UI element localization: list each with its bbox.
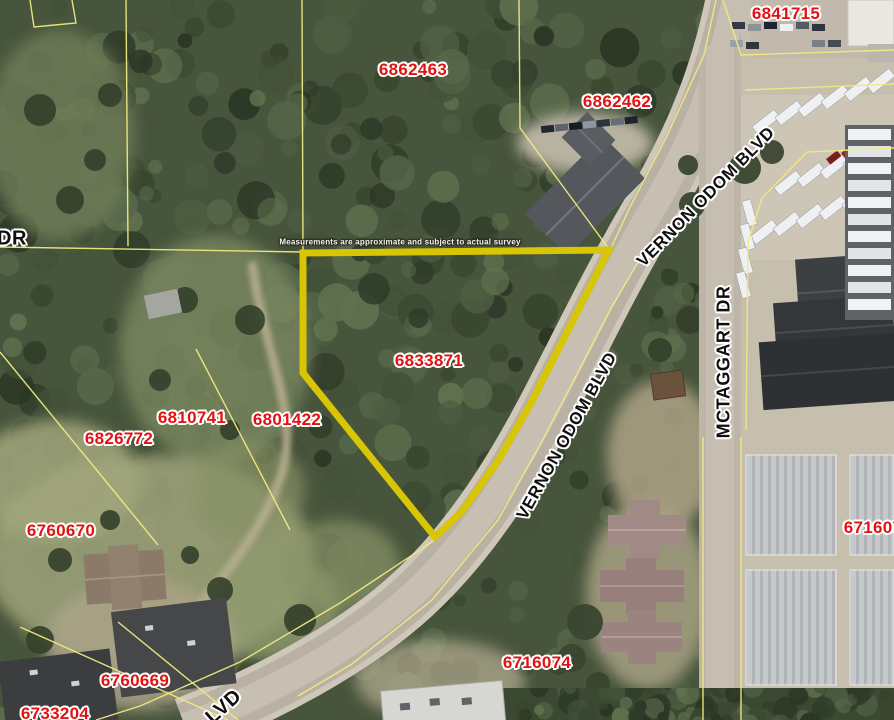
parcel-label[interactable]: 6841715 (752, 4, 820, 24)
parcel-label[interactable]: 6760670 (27, 521, 95, 541)
shed (650, 370, 685, 400)
warehouse-roofs (746, 455, 894, 685)
parcel-label[interactable]: 6733204 (21, 704, 89, 720)
trailer-column (848, 129, 891, 310)
parcel-label[interactable]: 6826772 (85, 429, 153, 449)
road-label-mctaggart: MCTAGGART DR (714, 286, 735, 439)
parcel-label[interactable]: 671607 (844, 518, 894, 538)
parcel-label[interactable]: 6810741 (158, 408, 226, 428)
map-viewport[interactable]: Measurements are approximate and subject… (0, 0, 894, 720)
parcel-label[interactable]: 6760669 (101, 671, 169, 691)
parcel-label[interactable]: 6801422 (253, 410, 321, 430)
parcel-label-highlighted[interactable]: 6833871 (395, 351, 463, 371)
measurement-disclaimer: Measurements are approximate and subject… (279, 238, 520, 247)
industrial-area (730, 0, 894, 720)
apartment-buildings (600, 500, 686, 664)
parcel-label[interactable]: 6862462 (583, 92, 651, 112)
parcel-label[interactable]: 6716074 (503, 653, 571, 673)
road-label-dr-partial: DR (0, 228, 27, 251)
parcel-label[interactable]: 6862463 (379, 60, 447, 80)
